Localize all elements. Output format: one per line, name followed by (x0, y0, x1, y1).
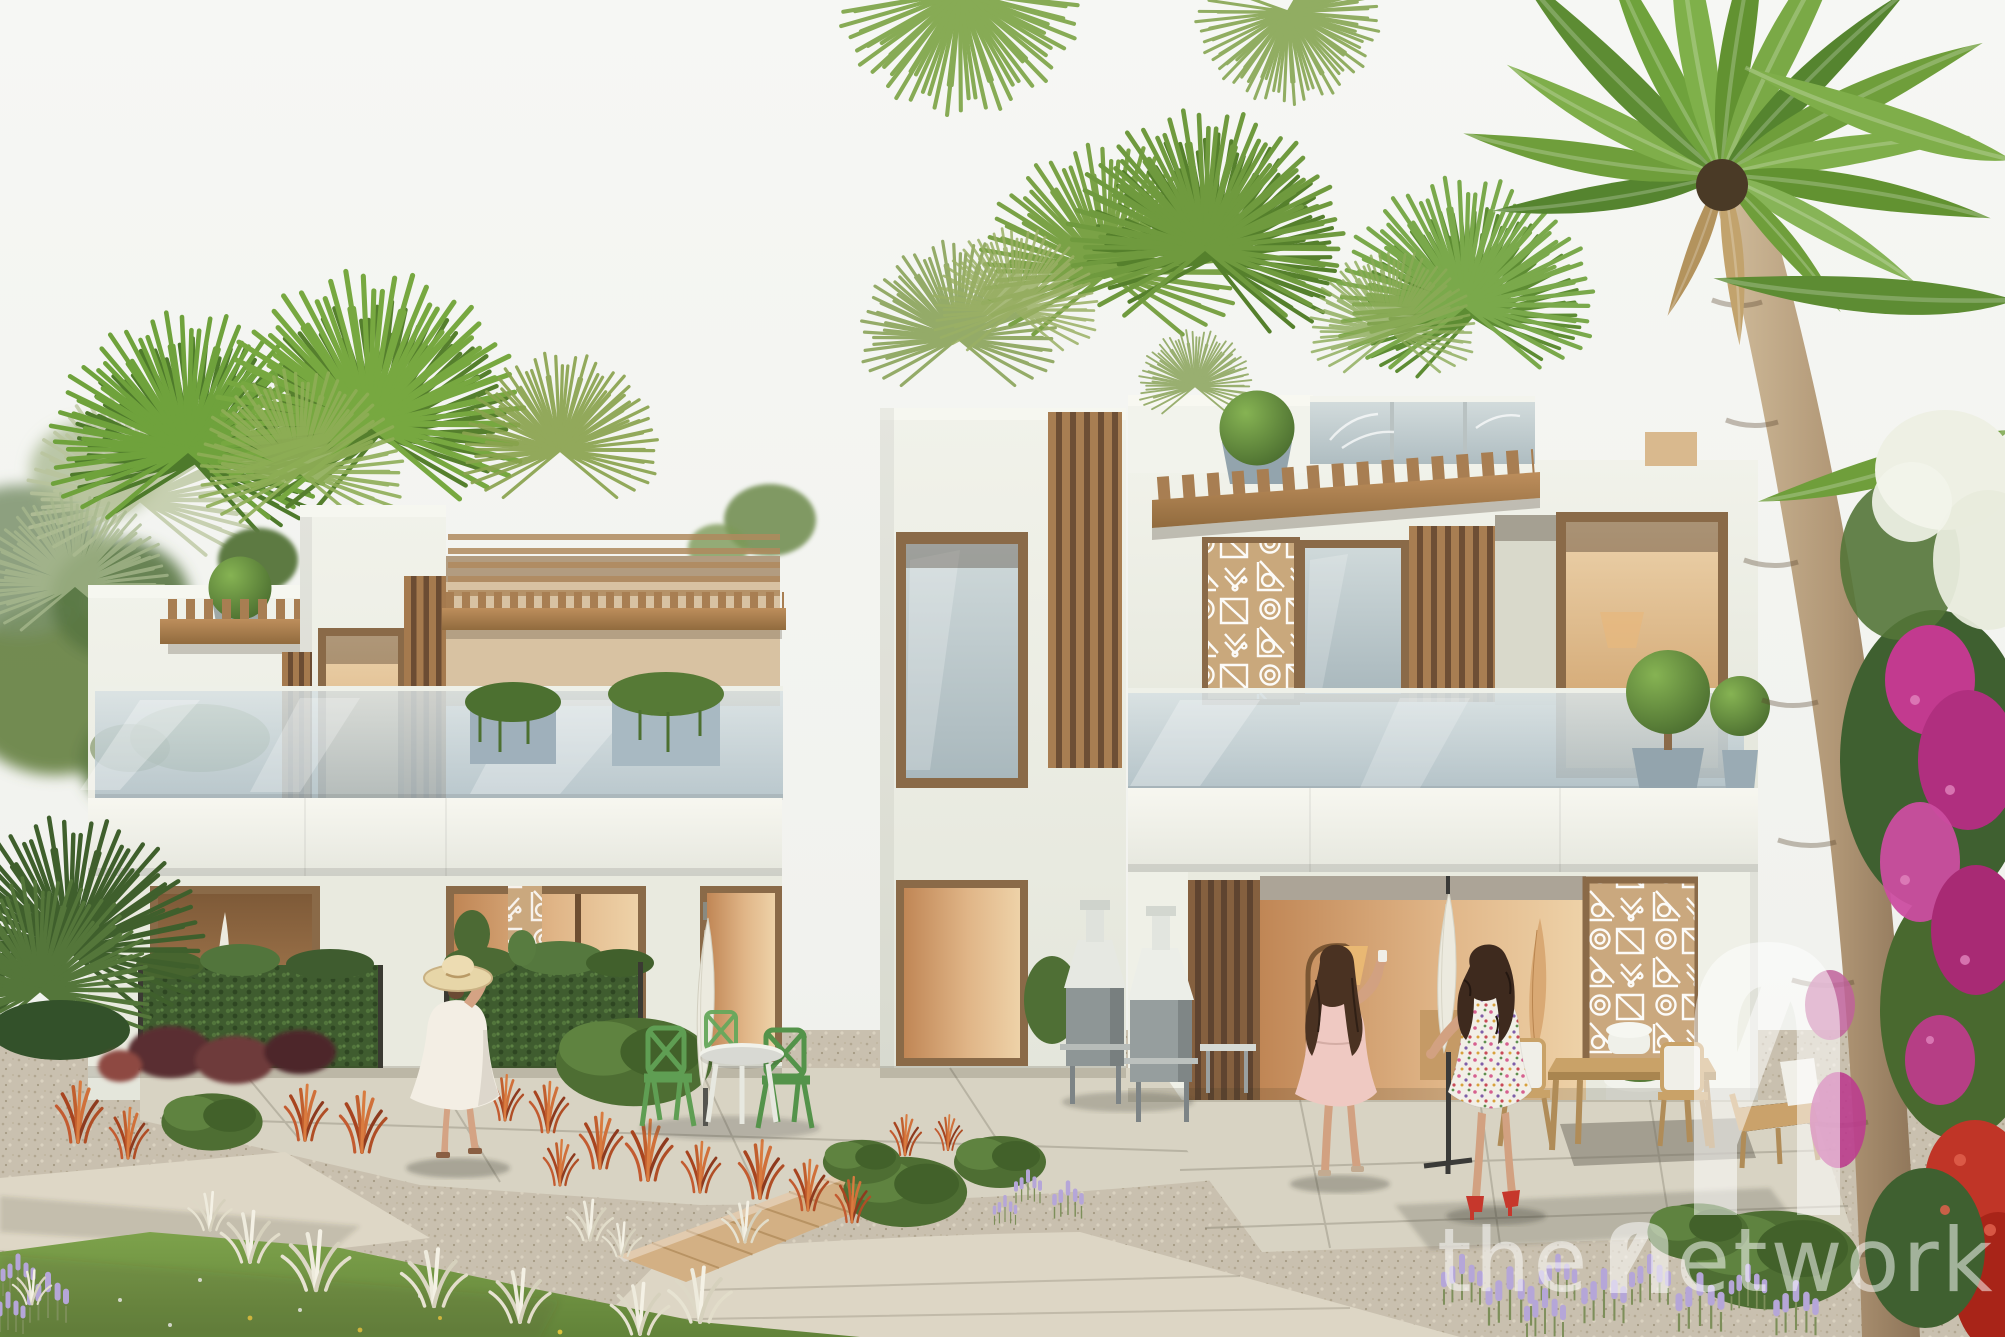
timber-slat-door (1188, 880, 1260, 1112)
glass-balcony (80, 672, 783, 800)
render-canvas: Architectural rendering of modern two-st… (0, 0, 2005, 1337)
architectural-render: Architectural rendering of modern two-st… (0, 0, 2005, 1337)
tall-window (896, 532, 1028, 788)
ground-floor-window (896, 880, 1028, 1066)
mashrabiya-screen (1205, 540, 1297, 702)
watermark-text-the: the (1437, 1209, 1590, 1312)
roof-terrace (442, 534, 786, 706)
timber-louvres (1048, 412, 1122, 768)
timber-louvres (1409, 526, 1495, 702)
rooftop-glass-rail (1310, 396, 1535, 464)
upper-window (1297, 540, 1409, 702)
watermark-text-etwork: etwork (1676, 1209, 1996, 1312)
